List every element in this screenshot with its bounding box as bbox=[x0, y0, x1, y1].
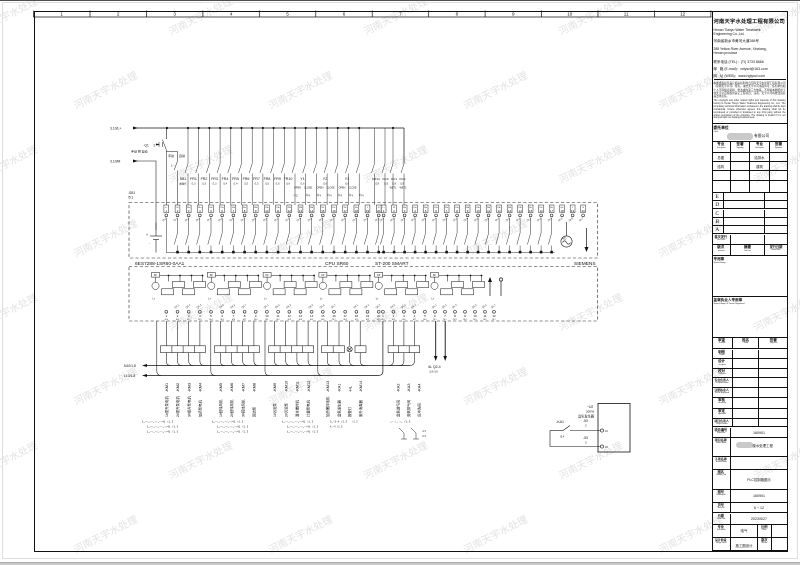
svg-text:19: 19 bbox=[571, 209, 575, 213]
svg-text:QA.7: QA.7 bbox=[411, 303, 418, 309]
svg-text:-KM5: -KM5 bbox=[219, 383, 223, 392]
svg-text:/1.5: /1.5 bbox=[244, 183, 249, 186]
svg-text:20: 20 bbox=[377, 209, 381, 213]
svg-text:KF: KF bbox=[433, 274, 437, 277]
svg-text:/1.5: /1.5 bbox=[422, 430, 427, 433]
svg-text:CPU SR60: CPU SR60 bbox=[325, 261, 349, 267]
svg-text:M.5: M.5 bbox=[310, 319, 313, 321]
svg-text:L+: L+ bbox=[376, 298, 379, 301]
svg-text:M.3: M.3 bbox=[377, 319, 380, 321]
svg-text:/1.5: /1.5 bbox=[422, 435, 427, 438]
svg-text:M.4: M.4 bbox=[463, 319, 466, 321]
svg-text:FR9: FR9 bbox=[274, 177, 281, 181]
svg-text:DI.0: DI.0 bbox=[505, 217, 511, 222]
svg-text:M.0: M.0 bbox=[254, 319, 257, 321]
svg-text:DI.4: DI.4 bbox=[463, 217, 469, 222]
svg-text:15: 15 bbox=[529, 209, 533, 213]
svg-text:M.2: M.2 bbox=[277, 319, 280, 321]
svg-text:10: 10 bbox=[473, 314, 477, 318]
svg-text:10: 10 bbox=[265, 209, 269, 213]
svg-text:3.10/M: 3.10/M bbox=[110, 160, 121, 164]
svg-text:14: 14 bbox=[518, 209, 522, 213]
svg-text:M.7: M.7 bbox=[413, 319, 416, 321]
svg-text:/1.6: /1.6 bbox=[286, 183, 291, 186]
svg-text:OPEN: OPEN bbox=[294, 187, 301, 190]
svg-text:DI.6: DI.6 bbox=[318, 217, 324, 222]
svg-text:-KM8: -KM8 bbox=[253, 383, 257, 392]
svg-text:M.5: M.5 bbox=[392, 319, 395, 321]
svg-text:19: 19 bbox=[366, 209, 370, 213]
svg-text:KF: KF bbox=[377, 274, 381, 277]
svg-text:臭氧排气阀: 臭氧排气阀 bbox=[406, 399, 411, 417]
svg-text:6ES7288-1SR60-0AA1: 6ES7288-1SR60-0AA1 bbox=[135, 261, 185, 267]
svg-text:-KA2: -KA2 bbox=[397, 384, 401, 392]
svg-text:12: 12 bbox=[497, 209, 501, 213]
svg-text:QA.3: QA.3 bbox=[375, 303, 382, 309]
svg-text:DI.0: DI.0 bbox=[421, 217, 427, 222]
svg-text:-KM10: -KM10 bbox=[284, 381, 288, 392]
svg-text:L+: L+ bbox=[432, 298, 435, 301]
svg-text:-KM2: -KM2 bbox=[176, 383, 180, 392]
svg-text:QA.6: QA.6 bbox=[319, 303, 326, 309]
svg-text:15: 15 bbox=[321, 314, 325, 318]
svg-text:4: 4 bbox=[199, 314, 201, 318]
svg-text:-KM1: -KM1 bbox=[165, 383, 169, 392]
svg-text:-53: -53 bbox=[583, 436, 588, 440]
svg-text:3#提升泵电机: 3#提升泵电机 bbox=[186, 396, 191, 417]
svg-text:20: 20 bbox=[581, 209, 585, 213]
svg-text:1⌄—○⌄—○⌄—○⌄—○41 /1.3: 1⌄—○⌄—○⌄—○⌄—○41 /1.3 bbox=[147, 425, 179, 429]
svg-text:-KA1: -KA1 bbox=[338, 384, 342, 392]
svg-text:/5.4: /5.4 bbox=[560, 435, 565, 439]
svg-text:2#提升泵电机: 2#提升泵电机 bbox=[175, 396, 180, 417]
svg-text:反冲洗阀: 反冲洗阀 bbox=[417, 403, 422, 417]
svg-text:FR7: FR7 bbox=[253, 177, 260, 181]
svg-text:~U2: ~U2 bbox=[587, 405, 593, 409]
svg-text:12: 12 bbox=[288, 314, 292, 318]
svg-text:2#回转风机: 2#回转风机 bbox=[229, 399, 234, 417]
svg-text:4L Q2.4: 4L Q2.4 bbox=[428, 365, 441, 369]
svg-text:17: 17 bbox=[344, 314, 348, 318]
svg-text:1⌄—○⌄—○⌄—○⌄—○41 /1.3: 1⌄—○⌄—○⌄—○⌄—○41 /1.3 bbox=[147, 430, 179, 434]
svg-text:加药泵电机: 加药泵电机 bbox=[198, 399, 203, 417]
svg-text:DI.2: DI.2 bbox=[184, 217, 190, 222]
svg-text:M.6: M.6 bbox=[483, 319, 486, 321]
svg-text:2: 2 bbox=[154, 144, 156, 148]
svg-text:18: 18 bbox=[355, 209, 359, 213]
svg-text:KF: KF bbox=[154, 274, 158, 277]
svg-text:DI.5: DI.5 bbox=[474, 217, 480, 222]
svg-text:15: 15 bbox=[321, 209, 325, 213]
svg-text:1⌄—○⌄—○⌄—○⌄—○41 /1.3: 1⌄—○⌄—○⌄—○⌄—○41 /1.3 bbox=[212, 420, 244, 424]
svg-text:QA.2: QA.2 bbox=[441, 303, 448, 309]
svg-text:1: 1 bbox=[60, 12, 63, 17]
svg-text:DI.1: DI.1 bbox=[263, 217, 269, 222]
svg-text:DI.2: DI.2 bbox=[442, 217, 448, 222]
svg-text:OPEN: OPEN bbox=[339, 187, 346, 190]
svg-text:QA.7: QA.7 bbox=[330, 303, 337, 309]
svg-text:17: 17 bbox=[344, 209, 348, 213]
svg-text:10: 10 bbox=[567, 12, 573, 17]
svg-text:Y2: Y2 bbox=[323, 177, 327, 181]
svg-text:14: 14 bbox=[310, 314, 314, 318]
svg-text:/1.8: /1.8 bbox=[400, 183, 405, 186]
svg-text:DI.4: DI.4 bbox=[547, 217, 553, 222]
svg-text:3: 3 bbox=[173, 12, 176, 17]
svg-text:DI.7: DI.7 bbox=[495, 217, 501, 222]
svg-text:M.4: M.4 bbox=[299, 319, 302, 321]
svg-text:M.1: M.1 bbox=[176, 319, 179, 321]
svg-text:L+: L+ bbox=[264, 298, 267, 301]
svg-text:17: 17 bbox=[550, 209, 554, 213]
svg-text:M.4: M.4 bbox=[209, 319, 212, 321]
svg-text:5: 5 bbox=[424, 314, 426, 318]
svg-text:20: 20 bbox=[377, 314, 381, 318]
svg-text:11: 11 bbox=[483, 314, 486, 318]
svg-text:QA.1: QA.1 bbox=[174, 303, 181, 309]
svg-text:QA.5: QA.5 bbox=[390, 303, 397, 309]
svg-text:/1.8: /1.8 bbox=[392, 183, 397, 186]
svg-text:M.1: M.1 bbox=[265, 319, 268, 321]
svg-text:1⌄—○⌄—○⌄—○⌄—○41 /1.3: 1⌄—○⌄—○⌄—○⌄—○41 /1.3 bbox=[217, 430, 249, 434]
svg-text:6: 6 bbox=[434, 314, 436, 318]
svg-text:M.5: M.5 bbox=[221, 319, 224, 321]
svg-text:DI.1: DI.1 bbox=[432, 217, 438, 222]
svg-text:1⌄—○⌄—○⌄—○⌄—○41 /1.3: 1⌄—○⌄—○⌄—○⌄—○41 /1.3 bbox=[287, 430, 319, 434]
svg-text:DI.1: DI.1 bbox=[352, 217, 358, 222]
svg-text:5: 5 bbox=[210, 314, 212, 318]
svg-text:DI.5: DI.5 bbox=[218, 217, 224, 222]
svg-text:1#回转风机: 1#回转风机 bbox=[218, 399, 223, 417]
svg-text:1: 1 bbox=[382, 314, 384, 318]
svg-text:计量泵电机: 计量泵电机 bbox=[306, 399, 311, 417]
svg-text:1⌄—○⌄—○⌄—○⌄—○41 /1.3: 1⌄—○⌄—○⌄—○⌄—○41 /1.3 bbox=[217, 425, 249, 429]
svg-text:WET1: WET1 bbox=[390, 187, 397, 190]
svg-text:18: 18 bbox=[355, 314, 359, 318]
svg-text:DI.2: DI.2 bbox=[363, 217, 369, 222]
svg-text:16: 16 bbox=[332, 314, 336, 318]
svg-text:M.6: M.6 bbox=[402, 319, 405, 321]
svg-text:+: + bbox=[146, 233, 148, 237]
svg-text:M.2: M.2 bbox=[187, 319, 190, 321]
svg-text:7: 7 bbox=[399, 12, 402, 17]
svg-text:L+: L+ bbox=[153, 298, 156, 301]
svg-text:CLOSE: CLOSE bbox=[304, 187, 313, 190]
svg-text:M.1: M.1 bbox=[355, 319, 358, 321]
svg-text:FR1: FR1 bbox=[190, 177, 197, 181]
svg-text:4: 4 bbox=[352, 194, 354, 198]
svg-text:-KM6: -KM6 bbox=[230, 383, 234, 392]
svg-text:臭氧进气阀: 臭氧进气阀 bbox=[396, 399, 401, 417]
svg-text:QA.6: QA.6 bbox=[230, 303, 237, 309]
svg-text:/1.6: /1.6 bbox=[301, 183, 306, 186]
svg-text:DI.6: DI.6 bbox=[400, 217, 406, 222]
svg-text:-KA4: -KA4 bbox=[418, 384, 422, 392]
svg-text:QA.2: QA.2 bbox=[274, 303, 281, 309]
svg-text:4: 4 bbox=[320, 194, 322, 198]
svg-text:DI.3: DI.3 bbox=[195, 217, 201, 222]
svg-text:2: 2 bbox=[177, 314, 179, 318]
svg-text:-KM4: -KM4 bbox=[199, 383, 203, 392]
svg-text:QA.7: QA.7 bbox=[241, 303, 248, 309]
svg-text:/1.8 /1.8: /1.8 /1.8 bbox=[429, 371, 438, 374]
svg-text:N10/1.8: N10/1.8 bbox=[124, 364, 136, 368]
svg-text:QA.3: QA.3 bbox=[451, 303, 458, 309]
svg-text:DI.5: DI.5 bbox=[390, 217, 396, 222]
svg-text:QA.3: QA.3 bbox=[196, 303, 203, 309]
svg-text:3.10/L+: 3.10/L+ bbox=[110, 127, 121, 131]
svg-text:8: 8 bbox=[456, 12, 459, 17]
svg-text:7: 7 bbox=[233, 314, 235, 318]
svg-text:QA.3: QA.3 bbox=[286, 303, 293, 309]
svg-text:DI.4: DI.4 bbox=[296, 217, 302, 222]
svg-text:QA.6: QA.6 bbox=[400, 303, 407, 309]
svg-text:/5.1: /5.1 bbox=[128, 196, 134, 200]
svg-text:11: 11 bbox=[277, 209, 280, 213]
svg-text:4: 4 bbox=[362, 194, 364, 198]
svg-text:臭氧发生器: 臭氧发生器 bbox=[337, 399, 342, 417]
svg-text:手动: 手动 bbox=[168, 153, 174, 158]
svg-text:QA.2: QA.2 bbox=[185, 303, 192, 309]
svg-text:/1.6: /1.6 bbox=[276, 183, 281, 186]
svg-text:QA.7: QA.7 bbox=[490, 303, 497, 309]
svg-text:QA.5: QA.5 bbox=[308, 303, 315, 309]
svg-text:-KM3: -KM3 bbox=[187, 383, 191, 392]
svg-text:M.3: M.3 bbox=[198, 319, 201, 321]
svg-text:19: 19 bbox=[366, 314, 370, 318]
svg-text:QA.5: QA.5 bbox=[471, 303, 478, 309]
svg-text:M.0: M.0 bbox=[165, 319, 168, 321]
svg-text:M.7: M.7 bbox=[243, 319, 246, 321]
svg-text:QA.1: QA.1 bbox=[431, 303, 438, 309]
svg-text:/1.4: /1.4 bbox=[223, 183, 228, 186]
svg-text:FR3: FR3 bbox=[211, 177, 218, 181]
svg-text:ST-200 SMART: ST-200 SMART bbox=[375, 261, 409, 267]
svg-text:16: 16 bbox=[539, 209, 543, 213]
svg-text:L+: L+ bbox=[320, 298, 323, 301]
svg-text:QA.5: QA.5 bbox=[219, 303, 226, 309]
svg-text:11: 11 bbox=[624, 12, 629, 17]
svg-text:-KM9: -KM9 bbox=[273, 383, 277, 392]
svg-text:/1.3: /1.3 bbox=[202, 183, 207, 186]
svg-text:DI.4: DI.4 bbox=[207, 217, 213, 222]
svg-text:KC2: KC2 bbox=[399, 177, 405, 181]
svg-text:M.7: M.7 bbox=[492, 319, 495, 321]
svg-text:2: 2 bbox=[585, 441, 587, 445]
svg-text:-Q1: -Q1 bbox=[144, 144, 150, 148]
svg-text:DI.1: DI.1 bbox=[173, 217, 179, 222]
svg-text:CLOSE: CLOSE bbox=[326, 187, 335, 190]
svg-text:报警灯: 报警灯 bbox=[347, 406, 352, 417]
svg-text:DI.3: DI.3 bbox=[453, 217, 459, 222]
svg-text:DI.0: DI.0 bbox=[162, 217, 168, 222]
svg-text:/1.3: /1.3 bbox=[352, 421, 358, 424]
svg-text:DI.0: DI.0 bbox=[251, 217, 257, 222]
svg-text:加药搅拌电机: 加药搅拌电机 bbox=[325, 396, 330, 417]
svg-text:QA.1: QA.1 bbox=[353, 303, 360, 309]
svg-text:FR8: FR8 bbox=[264, 177, 271, 181]
svg-text:-KM13: -KM13 bbox=[326, 381, 330, 392]
svg-text:-KM14: -KM14 bbox=[359, 381, 363, 392]
svg-text:6: 6 bbox=[221, 314, 223, 318]
svg-text:FR10: FR10 bbox=[284, 177, 293, 181]
svg-text:M.2: M.2 bbox=[366, 319, 369, 321]
svg-text:DI.2: DI.2 bbox=[526, 217, 532, 222]
svg-text:4: 4 bbox=[341, 194, 343, 198]
svg-text:10: 10 bbox=[265, 314, 269, 318]
svg-text:-KA1: -KA1 bbox=[556, 420, 564, 424]
svg-text:1#: 1# bbox=[605, 430, 608, 433]
svg-text:M.0: M.0 bbox=[423, 319, 426, 321]
svg-text:M.3: M.3 bbox=[453, 319, 456, 321]
svg-text:M.5: M.5 bbox=[473, 319, 476, 321]
svg-text:6: 6 bbox=[343, 12, 346, 17]
svg-text:11: 11 bbox=[277, 314, 280, 318]
svg-text:DI.7: DI.7 bbox=[240, 217, 246, 222]
svg-text:M.7: M.7 bbox=[332, 319, 335, 321]
svg-text:FR5: FR5 bbox=[232, 177, 239, 181]
svg-text:KC0: KC0 bbox=[382, 177, 388, 181]
svg-text:M.4: M.4 bbox=[381, 319, 384, 321]
svg-text:FR2: FR2 bbox=[201, 177, 208, 181]
svg-text:KC1: KC1 bbox=[391, 177, 397, 181]
svg-text:1--: 1-- bbox=[171, 164, 174, 168]
svg-text:-KA3: -KA3 bbox=[407, 384, 411, 392]
svg-text:OPEN: OPEN bbox=[317, 187, 324, 190]
svg-text:/1.8: /1.8 bbox=[375, 183, 380, 186]
svg-text:DI.0: DI.0 bbox=[341, 217, 347, 222]
svg-text:1#提升泵电机: 1#提升泵电机 bbox=[164, 396, 169, 417]
svg-text:8: 8 bbox=[454, 314, 456, 318]
svg-text:DI.2: DI.2 bbox=[274, 217, 280, 222]
svg-text:4: 4 bbox=[309, 194, 311, 198]
svg-text:13: 13 bbox=[299, 209, 303, 213]
svg-text:12: 12 bbox=[492, 314, 496, 318]
svg-text:Y1: Y1 bbox=[300, 177, 304, 181]
svg-text:/1.8: /1.8 bbox=[384, 183, 389, 186]
svg-text:/1.5: /1.5 bbox=[265, 183, 270, 186]
svg-text:AC: AC bbox=[562, 237, 567, 241]
svg-text:4⌄—4 /1.5: 4⌄—4 /1.5 bbox=[330, 426, 343, 429]
svg-text:3#回转风机: 3#回转风机 bbox=[240, 399, 245, 417]
svg-text:KF: KF bbox=[265, 274, 269, 277]
svg-text:DI.4: DI.4 bbox=[379, 217, 385, 222]
svg-text:-HL: -HL bbox=[348, 386, 352, 392]
svg-text:11: 11 bbox=[487, 209, 490, 213]
svg-text:FR14: FR14 bbox=[372, 177, 380, 181]
svg-text:/1.4: /1.4 bbox=[234, 183, 239, 186]
svg-text:13: 13 bbox=[299, 314, 303, 318]
svg-text:5: 5 bbox=[286, 12, 289, 17]
svg-text:DI.1: DI.1 bbox=[516, 217, 522, 222]
svg-text:9: 9 bbox=[512, 12, 515, 17]
svg-text:DI.3: DI.3 bbox=[285, 217, 291, 222]
svg-text:-Y2: -Y2 bbox=[293, 194, 298, 198]
svg-text:M.0: M.0 bbox=[344, 319, 347, 321]
svg-text:2: 2 bbox=[393, 314, 395, 318]
svg-text:自动: 自动 bbox=[179, 153, 185, 158]
svg-text:-: - bbox=[149, 241, 150, 245]
svg-text:-SB1: -SB1 bbox=[128, 191, 135, 195]
svg-text:潜水搅拌机: 潜水搅拌机 bbox=[295, 399, 300, 417]
svg-text:QA.1: QA.1 bbox=[263, 303, 270, 309]
svg-text:FR6: FR6 bbox=[243, 177, 250, 181]
svg-text:-KM11: -KM11 bbox=[296, 381, 300, 392]
svg-text:臭氧发生器: 臭氧发生器 bbox=[578, 414, 595, 419]
svg-text:1: 1 bbox=[165, 314, 167, 318]
svg-text:DI.5: DI.5 bbox=[307, 217, 313, 222]
svg-text:1⌄—○⌄—○⌄—○⌄—○41 /1.3: 1⌄—○⌄—○⌄—○⌄—○41 /1.3 bbox=[282, 420, 314, 424]
svg-text:Y3: Y3 bbox=[345, 177, 349, 181]
svg-text:手动 预 自动: 手动 预 自动 bbox=[131, 149, 148, 154]
svg-text:9: 9 bbox=[255, 314, 257, 318]
svg-text:3: 3 bbox=[188, 314, 190, 318]
svg-text:/1.3: /1.3 bbox=[213, 183, 218, 186]
svg-text:5⌄—2○4 /1.5: 5⌄—2○4 /1.5 bbox=[330, 420, 348, 424]
svg-text:複操作: 複操作 bbox=[179, 182, 187, 186]
svg-text:-KM7: -KM7 bbox=[241, 383, 245, 392]
svg-text:-53: -53 bbox=[583, 419, 588, 423]
svg-text:9: 9 bbox=[464, 314, 466, 318]
svg-text:WET2: WET2 bbox=[400, 187, 407, 190]
svg-text:M.2: M.2 bbox=[443, 319, 446, 321]
svg-text:DI.6: DI.6 bbox=[484, 217, 490, 222]
svg-text:QA.6: QA.6 bbox=[481, 303, 488, 309]
svg-text:2: 2 bbox=[117, 12, 120, 17]
svg-text:14: 14 bbox=[310, 209, 314, 213]
svg-text:18: 18 bbox=[560, 209, 564, 213]
svg-text:KF: KF bbox=[321, 274, 325, 277]
svg-text:2: 2 bbox=[585, 424, 587, 428]
svg-text:1#污泥泵: 1#污泥泵 bbox=[272, 402, 277, 417]
svg-text:2#: 2# bbox=[605, 446, 608, 449]
svg-text:M.3: M.3 bbox=[288, 319, 291, 321]
svg-text:/1.5: /1.5 bbox=[255, 183, 260, 186]
svg-text:M.6: M.6 bbox=[321, 319, 324, 321]
svg-text:DI.6: DI.6 bbox=[568, 217, 574, 222]
svg-text:10: 10 bbox=[476, 209, 480, 213]
svg-text:-KM12: -KM12 bbox=[307, 381, 311, 392]
svg-text:3: 3 bbox=[403, 314, 405, 318]
svg-text:13: 13 bbox=[508, 209, 512, 213]
svg-text:12: 12 bbox=[680, 12, 686, 17]
svg-text:2#污泥泵: 2#污泥泵 bbox=[283, 402, 288, 417]
svg-text:紫外消毒器: 紫外消毒器 bbox=[358, 399, 363, 417]
svg-text:DI.5: DI.5 bbox=[558, 217, 564, 222]
svg-text:M.6: M.6 bbox=[232, 319, 235, 321]
svg-text:8: 8 bbox=[244, 314, 246, 318]
svg-text:/1.6: /1.6 bbox=[323, 183, 328, 186]
svg-text:12: 12 bbox=[288, 209, 292, 213]
svg-text:/1.6: /1.6 bbox=[345, 183, 350, 186]
svg-text:1⌄—○⌄—○⌄—○⌄—○41 /1.3: 1⌄—○⌄—○⌄—○⌄—○41 /1.3 bbox=[142, 420, 174, 424]
svg-text:DI.7: DI.7 bbox=[579, 217, 585, 222]
svg-text:4: 4 bbox=[230, 12, 233, 17]
svg-text:DI.3: DI.3 bbox=[537, 217, 543, 222]
svg-text:DI.7: DI.7 bbox=[411, 217, 417, 222]
svg-text:SIEMENS: SIEMENS bbox=[574, 261, 596, 267]
svg-text:1⌄—○⌄—○⌄—○⌄—○41 /1.3: 1⌄—○⌄—○⌄—○⌄—○41 /1.3 bbox=[287, 425, 319, 429]
svg-text:L+: L+ bbox=[208, 298, 211, 301]
svg-text:KF: KF bbox=[210, 274, 214, 277]
svg-text:DI.7: DI.7 bbox=[330, 217, 336, 222]
svg-text:QA.2: QA.2 bbox=[364, 303, 371, 309]
svg-text:M.1: M.1 bbox=[433, 319, 436, 321]
svg-text:FR4: FR4 bbox=[222, 177, 229, 181]
svg-text:4: 4 bbox=[414, 314, 416, 318]
svg-text:L10/1.8: L10/1.8 bbox=[124, 374, 135, 378]
svg-text:4: 4 bbox=[330, 194, 332, 198]
